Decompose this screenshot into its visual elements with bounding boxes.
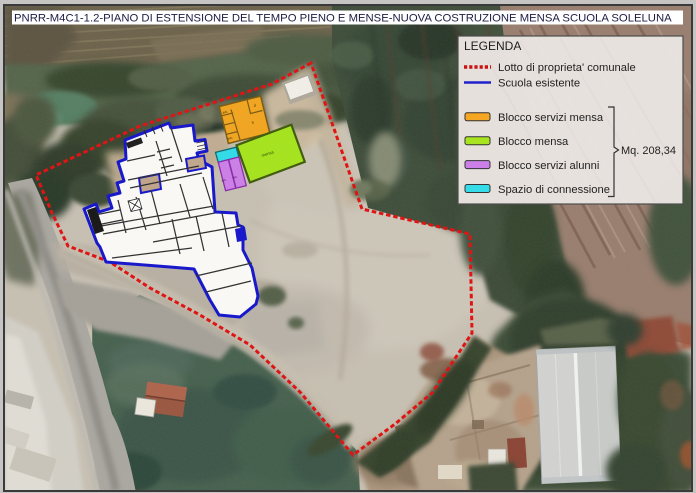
svg-text:PNRR-M4C1-1.2-PIANO DI ESTENSI: PNRR-M4C1-1.2-PIANO DI ESTENSIONE DEL TE…	[14, 13, 672, 25]
svg-text:Blocco servizi mensa: Blocco servizi mensa	[498, 112, 604, 124]
svg-text:Blocco mensa: Blocco mensa	[498, 136, 569, 148]
svg-text:LEGENDA: LEGENDA	[464, 39, 521, 53]
svg-text:Lotto di proprieta' comunale: Lotto di proprieta' comunale	[498, 62, 636, 74]
svg-text:Spazio di connessione: Spazio di connessione	[498, 184, 610, 196]
svg-text:Mq. 208,34: Mq. 208,34	[621, 145, 676, 157]
svg-text:Blocco servizi alunni: Blocco servizi alunni	[498, 160, 599, 172]
svg-text:Scuola esistente: Scuola esistente	[498, 78, 580, 90]
